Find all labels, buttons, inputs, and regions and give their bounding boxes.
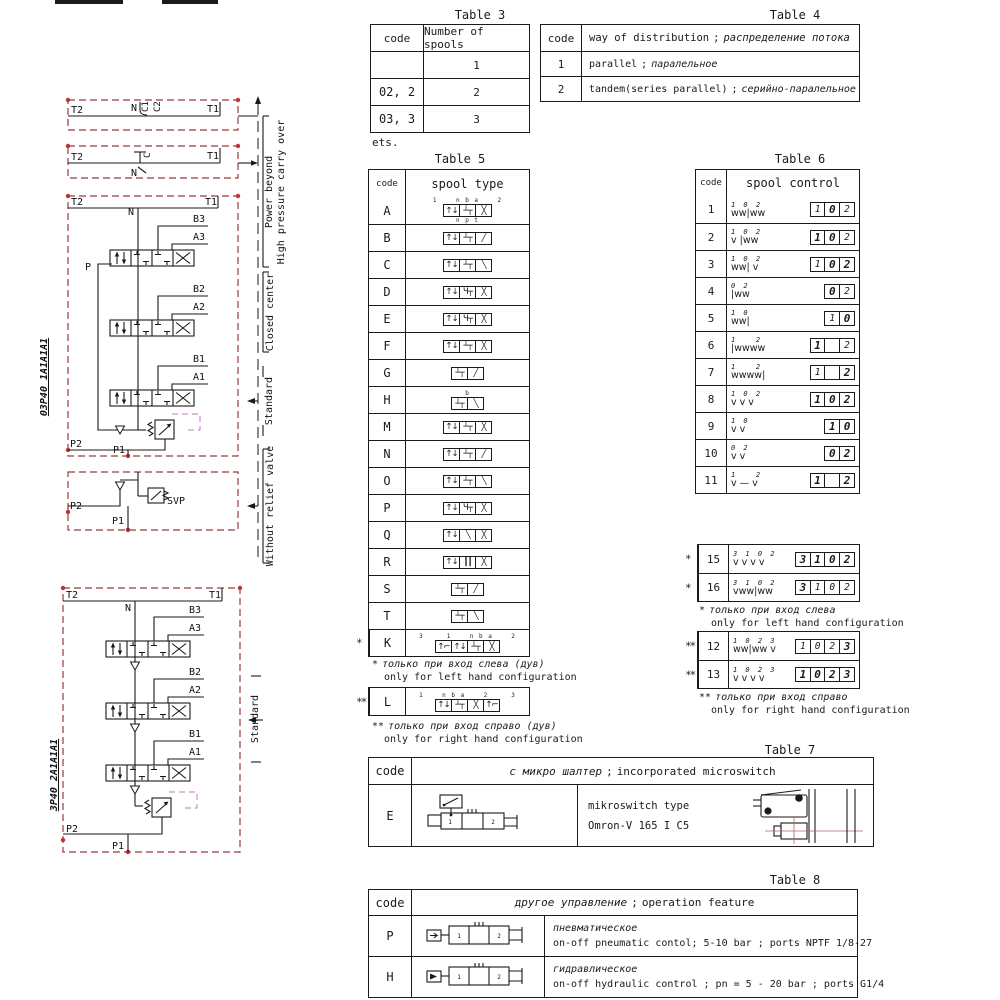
port-label-t1: T1 [209, 590, 221, 601]
control-code: 1 [696, 196, 726, 223]
spool-cell-blk: ┴┬ [459, 340, 476, 353]
spool-cell-x: ╳ [475, 340, 492, 353]
spool-row: M↑↓┴┬╳ [369, 413, 529, 440]
position-box [824, 365, 840, 380]
footnote-marker: * [685, 581, 690, 594]
position-box: 0 [810, 667, 826, 682]
spool-cell-blk: ┴┬ [459, 421, 476, 434]
table3-value: 2 [423, 79, 529, 105]
port-label-a2: A2 [193, 302, 205, 313]
table4-code: 1 [541, 52, 581, 76]
feature-ru: гидравлическое [553, 964, 637, 975]
table5-row-l-box: **L1 n b a 2 3↑↓┴┬╳↑⌐ [368, 687, 530, 716]
position-box: 1 [795, 667, 811, 682]
label-high-pressure-carry-over: High pressure carry over [276, 120, 287, 265]
spool-cells: ↑↓┃┃╳ [443, 556, 492, 569]
spool-cell-ud: ↑↓ [443, 232, 460, 245]
table4-description: tandem(series parallel) ; серийно-парале… [581, 77, 859, 101]
spool-row: A1 n b a 2↑↓┴┬╳n p t [369, 197, 529, 224]
separator: ; [731, 84, 737, 95]
spool-symbol: ↑↓╲╳ [405, 522, 529, 548]
port-label-b3: B3 [189, 605, 201, 616]
spool-drawing: 3 1 n b a 2↑⌐↑↓┴┬╳ [419, 633, 516, 653]
control-cell: 1 2wwww|12 [726, 359, 859, 385]
spool-cell-x: ╳ [483, 640, 500, 653]
port-label-b2: B2 [189, 667, 201, 678]
table7-code: E [369, 785, 411, 846]
port-label-p1: P1 [112, 516, 124, 527]
spool-code: T [369, 603, 405, 629]
position-box: 2 [839, 552, 855, 567]
desc-ru: серийно-паралельное [742, 84, 856, 95]
spool-cells: ↑↓┴┬╲ [443, 259, 492, 272]
spring-detent-glyph: |ww [731, 290, 750, 300]
spool-cells: ↑↓┴┬╲ [443, 475, 492, 488]
spool-code: L [369, 688, 405, 715]
spool-cell-ud: ↑↓ [443, 475, 460, 488]
spool-cell-blk: ┴┬ [459, 259, 476, 272]
spool-row: C↑↓┴┬╲ [369, 251, 529, 278]
spool-cell-blk: ┴┬ [467, 640, 484, 653]
table4-title: Table 4 [730, 8, 860, 22]
port-label-a1: A1 [189, 747, 201, 758]
spool-drawing: ↑↓┴┬╱ [443, 232, 492, 245]
position-box: 1 [824, 419, 840, 434]
port-label-n: N [125, 603, 131, 614]
spool-cell-fw: ╱ [475, 448, 492, 461]
model-code-3p40: 3P40 2A1A1A1 [49, 739, 60, 812]
position-box: 2 [839, 580, 855, 595]
control-cell: 1 0 2ww| v102 [726, 251, 859, 277]
table-row: 03, 3 3 [371, 105, 529, 132]
position-box: 1 [810, 365, 826, 380]
spool-cell-x: ╳ [475, 286, 492, 299]
spring-detent-glyph: ww| [731, 317, 750, 327]
position-box: 1 [810, 392, 826, 407]
position-boxes: 10 [826, 419, 855, 434]
table4-header-row: code way of distribution ; распределение… [541, 25, 859, 51]
port-label-a2: A2 [189, 685, 201, 696]
header-en: operation feature [642, 896, 755, 909]
table7-text: mikroswitch type Omron-V 165 I C5 [577, 785, 873, 846]
diagram-closed-center: C T2 N T1 [66, 144, 258, 179]
spring-detent-glyph: v |ww [731, 236, 758, 246]
table6-note-right: **только при вход справо only for right … [699, 691, 910, 717]
port-label-n: N [131, 168, 137, 179]
spool-symbol: 1 n b a 2 3↑↓┴┬╳↑⌐ [405, 688, 529, 715]
spring-detent-glyph: |wwww [731, 344, 765, 354]
port-label-b1: B1 [193, 354, 205, 365]
spool-symbol: 3 1 n b a 2↑⌐↑↓┴┬╳ [405, 630, 529, 656]
position-box [824, 338, 840, 353]
port-label-n: N [128, 207, 134, 218]
spool-drawing: ↑↓┴┬╲ [443, 475, 492, 488]
feature-en: on-off pneumatic contol; 5-10 bar ; port… [553, 938, 872, 949]
spool-cell-x: ╳ [475, 556, 492, 569]
spool-row: **L1 n b a 2 3↑↓┴┬╳↑⌐ [369, 688, 529, 715]
label-closed-center: Closed center [265, 273, 276, 351]
port-label-a3: A3 [193, 232, 205, 243]
spool-port-labels: b [465, 390, 470, 397]
control-code: 2 [696, 224, 726, 250]
table8-text: гидравлическое on-off hydraulic control … [544, 957, 857, 997]
label-power-beyond: Power beyond [264, 156, 275, 228]
feature-ru: пневматическое [553, 923, 637, 934]
pneumatic-valve-symbol: 1 2 [411, 916, 544, 956]
label-standard-2: Standard [250, 695, 261, 743]
port-label-t2: T2 [71, 105, 83, 116]
spool-cell-ud: ↑↓ [443, 448, 460, 461]
table4-code: 2 [541, 77, 581, 101]
microswitch-drawing [751, 787, 869, 845]
port-label-b2: B2 [193, 284, 205, 295]
position-box: 0 [824, 446, 840, 461]
spool-row: N↑↓┴┬╱ [369, 440, 529, 467]
annotation-rail: Power beyond High pressure carry over Cl… [247, 96, 287, 566]
control-cell: 1 0v v10 [726, 413, 859, 439]
position-box: 1 [810, 473, 826, 488]
control-symbol: 1 0v v [731, 417, 750, 435]
position-box: 1 [810, 257, 826, 272]
port-label-p1: P1 [113, 445, 125, 456]
spool-code: B [369, 225, 405, 251]
header-en: way of distribution [589, 32, 709, 44]
table7-row-e: E 1 2 mikros [369, 784, 873, 846]
spool-control-row: 111 2v — v12 [696, 466, 859, 493]
spool-drawing: ↑↓Ч┬╳ [443, 286, 492, 299]
spool-cell-ud: ↑↓ [435, 699, 452, 712]
position-box: 0 [824, 580, 840, 595]
footnote-marker: ** [685, 640, 694, 653]
table5-row-l: **L1 n b a 2 3↑↓┴┬╳↑⌐ [369, 688, 529, 715]
position-box: 2 [839, 230, 855, 245]
position-boxes: 12 [811, 338, 855, 353]
control-symbol: 1 2wwww| [731, 363, 765, 381]
note-ru: только при вход слева (дув) [382, 659, 545, 670]
table4-way-of-distribution: code way of distribution ; распределение… [540, 24, 860, 102]
control-symbol: 1 0 2 3ww|ww v [733, 637, 777, 655]
valve-with-microswitch-icon: 1 2 [420, 793, 570, 839]
spool-symbol: ↑↓┴┬╳ [405, 333, 529, 359]
spring-detent-glyph: v — v [731, 479, 758, 489]
control-symbol: 1 0 2 3v v v v [733, 666, 777, 684]
control-cell: 0 2v v02 [726, 440, 859, 466]
control-symbol: 3 1 0 2vww|ww [733, 579, 777, 597]
position-boxes: 02 [811, 446, 855, 461]
note-ru: только при вход слева [709, 605, 835, 616]
table8-row-pneumatic: P 1 2 пневматическое on-off pneumatic [369, 915, 857, 956]
header-ru: с микро шалтер [509, 765, 602, 778]
hydraulic-valve-symbol: 1 2 [411, 957, 544, 997]
port-label-n: N [131, 103, 137, 114]
control-code: 9 [696, 413, 726, 439]
table3-number-of-spools: code Number of spools 1 02, 2 2 03, 3 3 [370, 24, 530, 133]
position-boxes: 02 [811, 284, 855, 299]
desc-en: tandem(series parallel) [589, 84, 727, 95]
control-cell: 1 0 2v v v102 [726, 386, 859, 412]
control-code: 4 [696, 278, 726, 304]
spool-symbol: ↑↓┴┬╳ [405, 414, 529, 440]
table6-header-spool-control: spool control [726, 170, 859, 196]
spool-cell-blk: ┴┬ [451, 397, 468, 410]
control-code: 7 [696, 359, 726, 385]
control-symbol: 0 2v v [731, 444, 750, 462]
footnote-marker: ** [699, 692, 711, 703]
spring-detent-glyph: v v v v [733, 558, 765, 568]
spool-control-row: 11 0 2ww|ww102 [696, 196, 859, 223]
spool-port-labels: 1 n b a 2 3 [419, 692, 516, 699]
spool-cell-bw: ╲ [475, 259, 492, 272]
table8-code: P [369, 916, 411, 956]
spool-code: O [369, 468, 405, 494]
control-symbol: 1 0 2v |ww [731, 228, 762, 246]
spool-cell-hy: Ч┬ [459, 502, 476, 515]
spool-code: Q [369, 522, 405, 548]
table-row: 02, 2 2 [371, 78, 529, 105]
diagram-standard-block-2: T2 T1 N B3 A3 B2 A2 B1 A1 P2 P1 3P40 2A1… [49, 586, 263, 854]
spool-row: G┴┬╱ [369, 359, 529, 386]
spool-symbol: ┴┬╲ [405, 603, 529, 629]
spool-cell-ud: ↑↓ [451, 640, 468, 653]
spool-row: P↑↓Ч┬╳ [369, 494, 529, 521]
position-box: 3 [839, 667, 855, 682]
table4-header-title: way of distribution ; распределение пото… [581, 25, 859, 51]
port-label-t2: T2 [71, 197, 83, 208]
footnote-marker: * [372, 659, 378, 670]
spool-cells: ↑↓Ч┬╳ [443, 313, 492, 326]
spool-row: E↑↓Ч┬╳ [369, 305, 529, 332]
control-symbol: 1 2v — v [731, 471, 762, 489]
spool-drawing: b┴┬╲ [451, 390, 484, 410]
table3-code [371, 52, 423, 78]
position-box: 0 [824, 392, 840, 407]
spool-code: F [369, 333, 405, 359]
spool-control-row: 51 0ww|10 [696, 304, 859, 331]
spring-detent-glyph: ww|ww v [733, 645, 776, 655]
spool-cell-fw: ╱ [467, 583, 484, 596]
spool-port-labels: 3 1 n b a 2 [419, 633, 516, 640]
spool-control-row: *163 1 0 2vww|ww3102 [698, 573, 859, 601]
position-box: 0 [824, 257, 840, 272]
spool-control-row: 40 2|ww02 [696, 277, 859, 304]
spool-cell-fw: ╱ [475, 232, 492, 245]
spool-drawing: ↑↓┴┬╱ [443, 448, 492, 461]
spool-cells: ┴┬╲ [451, 610, 484, 623]
spring-detent-glyph: ww|ww [731, 209, 765, 219]
spool-cell-ud: ↑↓ [443, 421, 460, 434]
header-ru: другое управление [515, 896, 628, 909]
control-code: 16 [698, 574, 728, 601]
spool-control-row: 61 2|wwww12 [696, 331, 859, 358]
position-box: 0 [824, 202, 840, 217]
note-en: only for right hand configuration [699, 704, 910, 717]
separator: ; [606, 765, 613, 778]
spring-detent-glyph: wwww| [731, 371, 765, 381]
cell-1: 1 [448, 819, 452, 826]
table6-note-left: *только при вход слева only for left han… [699, 604, 904, 630]
position-box: 1 [810, 580, 826, 595]
spool-symbol: ↑↓┃┃╳ [405, 549, 529, 575]
cell-2: 2 [491, 819, 495, 826]
table6-title: Table 6 [735, 152, 865, 166]
port-label-t2: T2 [71, 152, 83, 163]
table7-title: Table 7 [725, 743, 855, 757]
control-symbol: 1 2|wwww [731, 336, 765, 354]
spool-row: O↑↓┴┬╲ [369, 467, 529, 494]
footnote-marker: * [356, 637, 361, 650]
spool-symbol: b┴┬╲ [405, 387, 529, 413]
port-label-b1: B1 [189, 729, 201, 740]
spool-cell-fw: ╱ [467, 367, 484, 380]
microswitch-model: Omron-V 165 I C5 [588, 820, 689, 832]
label-standard: Standard [264, 377, 275, 425]
position-box: 0 [824, 284, 840, 299]
control-cell: 3 1 0 2vww|ww3102 [728, 574, 859, 601]
control-code: 12 [698, 632, 728, 660]
table5-header-spool-type: spool type [405, 170, 529, 197]
microswitch-type-label: mikroswitch type [588, 800, 689, 812]
cell-1: 1 [457, 933, 461, 940]
port-label-p2: P2 [70, 501, 82, 512]
spool-row: F↑↓┴┬╳ [369, 332, 529, 359]
control-cell: 1 2|wwww12 [726, 332, 859, 358]
microswitch-valve-symbol: 1 2 [411, 785, 577, 846]
note-en: only for left hand configuration [699, 617, 904, 630]
control-cell: 1 0 2ww|ww102 [726, 196, 859, 223]
port-label-a3: A3 [189, 623, 201, 634]
control-code: 11 [696, 467, 726, 493]
spool-symbol: ↑↓┴┬╱ [405, 441, 529, 467]
cell-2: 2 [497, 974, 501, 981]
spool-cells: ┴┬╱ [451, 367, 484, 380]
position-box: 3 [795, 580, 811, 595]
diagram-without-relief: SVP P2 P1 [66, 472, 238, 532]
spool-cell-ud: ↑↓ [443, 259, 460, 272]
control-code: 6 [696, 332, 726, 358]
spool-row: S┴┬╱ [369, 575, 529, 602]
spool-cell-blk: ┴┬ [451, 610, 468, 623]
spring-detent-glyph: v v [731, 425, 745, 435]
hydraulic-control-icon: 1 2 [423, 960, 533, 994]
spool-row: T┴┬╲ [369, 602, 529, 629]
header-en: incorporated microswitch [617, 765, 776, 778]
spool-cell-x: ╳ [475, 529, 492, 542]
position-box: 2 [824, 639, 840, 654]
spool-row: R↑↓┃┃╳ [369, 548, 529, 575]
spool-control-row: **121 0 2 3ww|ww v1023 [698, 632, 859, 660]
table5-spool-type: code spool type A1 n b a 2↑↓┴┬╳n p tB↑↓┴… [368, 169, 530, 657]
control-cell: 1 2v — v12 [726, 467, 859, 493]
footnote-marker: ** [372, 721, 384, 732]
spool-code: H [369, 387, 405, 413]
spool-code: K [369, 630, 405, 656]
spool-drawing: ↑↓┴┬╲ [443, 259, 492, 272]
model-code-03p40: 03P40 1A1A1A1 [39, 338, 50, 416]
table3-value: 3 [423, 106, 529, 132]
spool-cell-ud: ↑↓ [443, 556, 460, 569]
table7-microswitch: code с микро шалтер ; incorporated micro… [368, 757, 874, 847]
control-code: 15 [698, 545, 728, 573]
position-box: 0 [839, 311, 855, 326]
spool-cell-bw: ╲ [475, 475, 492, 488]
position-box: 2 [839, 473, 855, 488]
spool-drawing: ┴┬╱ [451, 583, 484, 596]
diagram-standard-block: T2 T1 N B3 A3 B2 A2 B1 A1 P P2 P1 03P40 … [39, 194, 240, 458]
table3-header-code: code [371, 25, 423, 51]
spool-symbol: ↑↓Ч┬╳ [405, 495, 529, 521]
spool-symbol: 1 n b a 2↑↓┴┬╳n p t [405, 197, 529, 224]
table5-rows: A1 n b a 2↑↓┴┬╳n p tB↑↓┴┬╱C↑↓┴┬╲D↑↓Ч┬╳E↑… [369, 197, 529, 656]
control-symbol: 1 0ww| [731, 309, 750, 327]
port-label-t1: T1 [207, 151, 219, 162]
spool-drawing: ↑↓┴┬╳ [443, 340, 492, 353]
position-box: 2 [839, 392, 855, 407]
spool-cells: ↑↓┴┬╳ [443, 340, 492, 353]
spool-cells: ↑↓┴┬╳↑⌐ [435, 699, 500, 712]
position-box: 2 [839, 202, 855, 217]
spool-drawing: ↑↓┴┬╳ [443, 421, 492, 434]
position-boxes: 3102 [796, 552, 855, 567]
port-label-c2: C2 [153, 101, 163, 112]
spool-cell-blk: ┴┬ [459, 475, 476, 488]
diagram-power-beyond: T2 N C1 C2 T1 [66, 98, 258, 130]
spool-cell-hy: Ч┬ [459, 313, 476, 326]
spool-code: R [369, 549, 405, 575]
spool-cells: ↑⌐↑↓┴┬╳ [435, 640, 500, 653]
table7-header-row: code с микро шалтер ; incorporated micro… [369, 758, 873, 784]
control-symbol: 1 0 2ww| v [731, 255, 762, 273]
catalog-page: T2 N C1 C2 T1 C T2 N T1 [0, 0, 1000, 1000]
spool-cell-blk: ┴┬ [451, 583, 468, 596]
spool-cells: ↑↓┴┬╳ [443, 421, 492, 434]
position-box: 0 [824, 230, 840, 245]
label-without-relief-valve: Without relief valve [265, 446, 276, 566]
position-box: 2 [839, 338, 855, 353]
note-en: only for right hand configuration [372, 733, 583, 746]
control-cell: 3 1 0 2v v v v3102 [728, 545, 859, 573]
table7-header-code: code [369, 758, 411, 784]
control-symbol: 1 0 2v v v [731, 390, 762, 408]
spring-detent-glyph: v v v v [733, 674, 765, 684]
spool-cell-ud: ↑↓ [443, 340, 460, 353]
spool-symbol: ┴┬╱ [405, 360, 529, 386]
table-row: 1 [371, 51, 529, 78]
table5-header-code: code [369, 170, 405, 197]
desc-en: parallel [589, 59, 637, 70]
control-symbol: 1 0 2ww|ww [731, 201, 765, 219]
spool-cell-x: ╳ [475, 502, 492, 515]
table6-header-row: code spool control [696, 170, 859, 196]
position-box: 0 [839, 419, 855, 434]
control-symbol: 3 1 0 2v v v v [733, 550, 777, 568]
table5-title: Table 5 [400, 152, 520, 166]
position-boxes: 1023 [796, 667, 855, 682]
table8-title: Table 8 [730, 873, 860, 887]
position-box: 0 [810, 639, 826, 654]
position-box: 2 [839, 365, 855, 380]
spool-control-row: 81 0 2v v v102 [696, 385, 859, 412]
port-label-t2: T2 [66, 590, 78, 601]
position-box: 3 [839, 639, 855, 654]
spool-code: A [369, 197, 405, 224]
position-boxes: 12 [811, 473, 855, 488]
table6-rows: 11 0 2ww|ww10221 0 2v |ww10231 0 2ww| v1… [696, 196, 859, 493]
spool-cell-x: ╳ [475, 204, 492, 217]
table5-note-right: **только при вход справо (дув) only for … [372, 720, 583, 746]
table8-header-code: code [369, 890, 411, 915]
table6-block-left-hand: *153 1 0 2v v v v3102*163 1 0 2vww|ww310… [697, 544, 860, 602]
position-boxes: 10 [826, 311, 855, 326]
